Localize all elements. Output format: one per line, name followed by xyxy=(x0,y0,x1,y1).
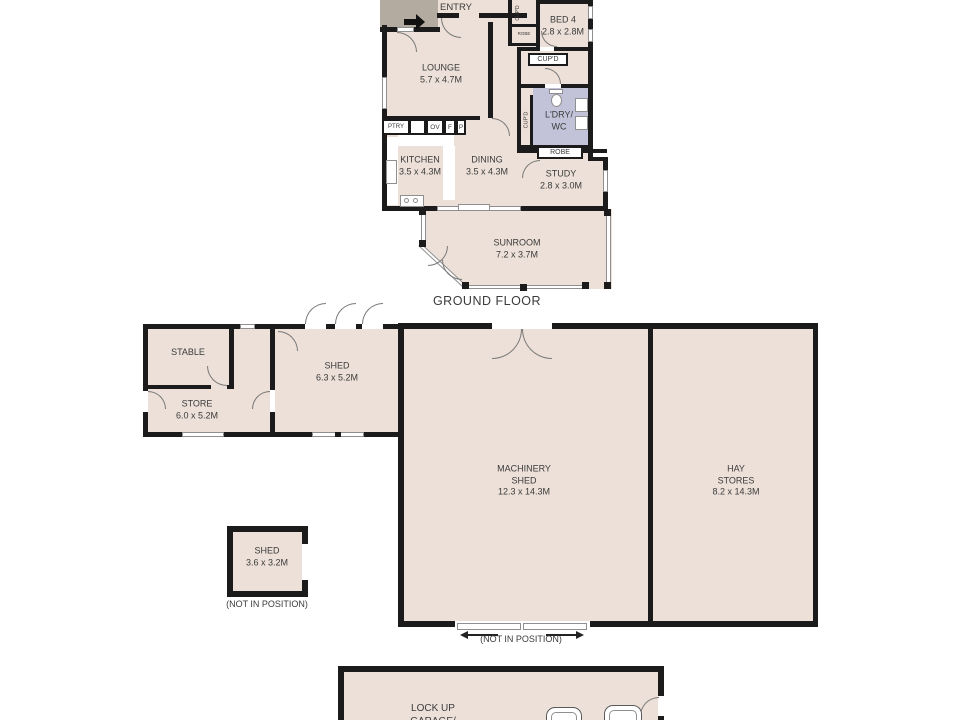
sunroom-post xyxy=(462,282,469,289)
wall xyxy=(302,580,308,597)
window xyxy=(603,170,608,192)
cooktop-burner xyxy=(404,198,409,203)
laundry-label: L'DRY/WC xyxy=(545,109,573,132)
wall xyxy=(648,323,818,329)
sunroom-door-arc xyxy=(442,260,462,280)
laundry-cupd-label: CUP'D xyxy=(523,112,530,129)
shape: SUNROOM xyxy=(494,237,541,249)
entry-arrow-head xyxy=(416,14,425,30)
cupd-room-label: CUP'D xyxy=(528,53,568,66)
shape: CUP'D xyxy=(537,56,558,63)
not-in-position-shed: (NOT IN POSITION) xyxy=(226,599,308,611)
shape: P xyxy=(459,124,463,131)
wall xyxy=(270,324,275,437)
closet-robe-label: ROBE xyxy=(518,31,531,37)
cooktop-burner xyxy=(413,198,418,203)
shape: 6.3 x 5.2M xyxy=(316,372,358,384)
shed-door-arc-up xyxy=(362,303,383,324)
shape: STORE xyxy=(176,398,218,410)
wall xyxy=(658,666,664,696)
store-label: STORE6.0 x 5.2M xyxy=(176,398,218,421)
door-gap xyxy=(335,324,356,329)
shape: LOCK UP xyxy=(410,702,456,715)
wall xyxy=(517,47,592,51)
wall xyxy=(536,0,540,50)
sunroom-post xyxy=(520,284,527,291)
sink xyxy=(386,160,397,184)
window xyxy=(588,6,593,19)
shape: 7.2 x 3.7M xyxy=(494,249,541,261)
entry-label: ENTRY xyxy=(440,2,472,14)
study-label: STUDY2.8 x 3.0M xyxy=(540,168,582,191)
wall xyxy=(227,385,234,389)
shape: 3.5 x 4.3M xyxy=(399,166,441,178)
entry-arrow-shaft xyxy=(404,19,416,25)
counter xyxy=(398,135,454,146)
wall xyxy=(517,47,521,151)
car-windshield xyxy=(609,710,637,720)
wall xyxy=(227,591,308,597)
shape: ROBE xyxy=(550,149,570,156)
not-in-position-machinery: (NOT IN POSITION) xyxy=(480,634,562,646)
wall xyxy=(658,716,664,720)
hay-stores-label: HAY STORES 8.2 x 14.3M xyxy=(712,463,759,498)
shed-door-arc-up xyxy=(305,303,326,324)
sliding-door xyxy=(457,623,521,630)
sliding-door xyxy=(523,623,587,630)
wall xyxy=(338,666,664,672)
wall xyxy=(229,324,234,389)
counter xyxy=(443,146,455,200)
shape: L'DRY/ xyxy=(545,109,573,121)
sunroom-post xyxy=(582,282,589,289)
shape: 2.8 x 2.8M xyxy=(542,26,584,38)
shape: SHED xyxy=(246,545,288,557)
room-study xyxy=(588,157,604,207)
shape: GARAGE/ xyxy=(410,715,456,720)
lounge-label: LOUNGE5.7 x 4.7M xyxy=(420,62,462,85)
shape: SHED xyxy=(316,360,358,372)
shape: F xyxy=(448,124,452,131)
wall xyxy=(338,666,344,720)
window xyxy=(182,432,224,437)
shape: DINING xyxy=(466,154,508,166)
shape: HAY xyxy=(712,463,759,475)
wall xyxy=(227,526,308,532)
shape: 3.5 x 4.3M xyxy=(466,166,508,178)
pantry2-cabinet: P xyxy=(456,119,466,135)
wall xyxy=(335,432,341,437)
shed-small-label: SHED3.6 x 3.2M xyxy=(246,545,288,568)
shape: 3.6 x 3.2M xyxy=(246,557,288,569)
wall xyxy=(813,323,818,627)
door-gap xyxy=(545,84,561,88)
door-gap xyxy=(270,390,275,412)
slide-arrow-right xyxy=(576,631,584,639)
dining-label: DINING3.5 x 4.3M xyxy=(466,154,508,177)
sunroom-post xyxy=(604,282,611,289)
wall xyxy=(302,526,308,544)
wall xyxy=(398,323,404,627)
kitchen-label: KITCHEN3.5 x 4.3M xyxy=(399,154,441,177)
shape: LOUNGE xyxy=(420,62,462,74)
shape: STORES xyxy=(712,475,759,487)
door-gap xyxy=(362,324,383,329)
wall xyxy=(536,0,593,4)
machinery-shed-label: MACHINERY SHED 12.3 x 14.3M xyxy=(497,463,551,498)
wall xyxy=(648,323,653,627)
shape: 2.8 x 3.0M xyxy=(540,180,582,192)
door-gap xyxy=(540,47,554,51)
shape: OV xyxy=(430,124,439,131)
window xyxy=(382,77,387,109)
wall xyxy=(227,526,233,597)
shape: 12.3 x 14.3M xyxy=(497,487,551,499)
closet-cupd-label: CUP'D xyxy=(515,5,522,20)
stable-label: STABLE xyxy=(171,347,205,359)
window xyxy=(240,324,255,329)
shed-large-label: SHED6.3 x 5.2M xyxy=(316,360,358,383)
car-windshield xyxy=(551,712,577,720)
shape: BED 4 xyxy=(542,14,584,26)
sunroom-window xyxy=(466,285,588,289)
bed4-label: BED 42.8 x 2.8M xyxy=(542,14,584,37)
shed-door-arc-up xyxy=(335,303,356,324)
sunroom-label: SUNROOM7.2 x 3.7M xyxy=(494,237,541,260)
sunroom-post xyxy=(419,240,426,247)
oven-cabinet: OV xyxy=(426,119,444,135)
shape: 6.0 x 5.2M xyxy=(176,410,218,422)
sunroom-window xyxy=(606,213,611,287)
fridge-cabinet: F xyxy=(444,119,456,135)
floor-plan: PTRY OV F P ENTRY BED 42.8 x 2.8M LOUNGE… xyxy=(0,0,960,720)
dryer xyxy=(575,116,588,130)
sliding-door xyxy=(458,204,490,211)
slide-arrow-left xyxy=(460,631,468,639)
shape: WC xyxy=(545,121,573,133)
wall xyxy=(143,324,275,329)
pantry-cabinet: PTRY xyxy=(382,119,410,135)
cabinet-blank xyxy=(409,119,426,135)
robe-label: ROBE xyxy=(537,146,583,159)
wall xyxy=(143,324,148,437)
shape: 5.7 x 4.7M xyxy=(420,74,462,86)
wall xyxy=(648,621,818,627)
toilet-bowl xyxy=(551,94,562,107)
washer xyxy=(575,98,588,112)
shape: PTRY xyxy=(388,124,404,130)
shape: STUDY xyxy=(540,168,582,180)
floor-title: GROUND FLOOR xyxy=(433,293,541,309)
wall xyxy=(488,22,493,118)
wall xyxy=(143,385,211,389)
wall xyxy=(508,0,512,46)
shape: KITCHEN xyxy=(399,154,441,166)
window xyxy=(588,29,593,42)
shape: SHED xyxy=(497,475,551,487)
wall xyxy=(588,0,593,161)
shape: MACHINERY xyxy=(497,463,551,475)
shape: 8.2 x 14.3M xyxy=(712,487,759,499)
garage-label: LOCK UP GARAGE/ xyxy=(410,702,456,720)
door-gap xyxy=(305,324,326,329)
